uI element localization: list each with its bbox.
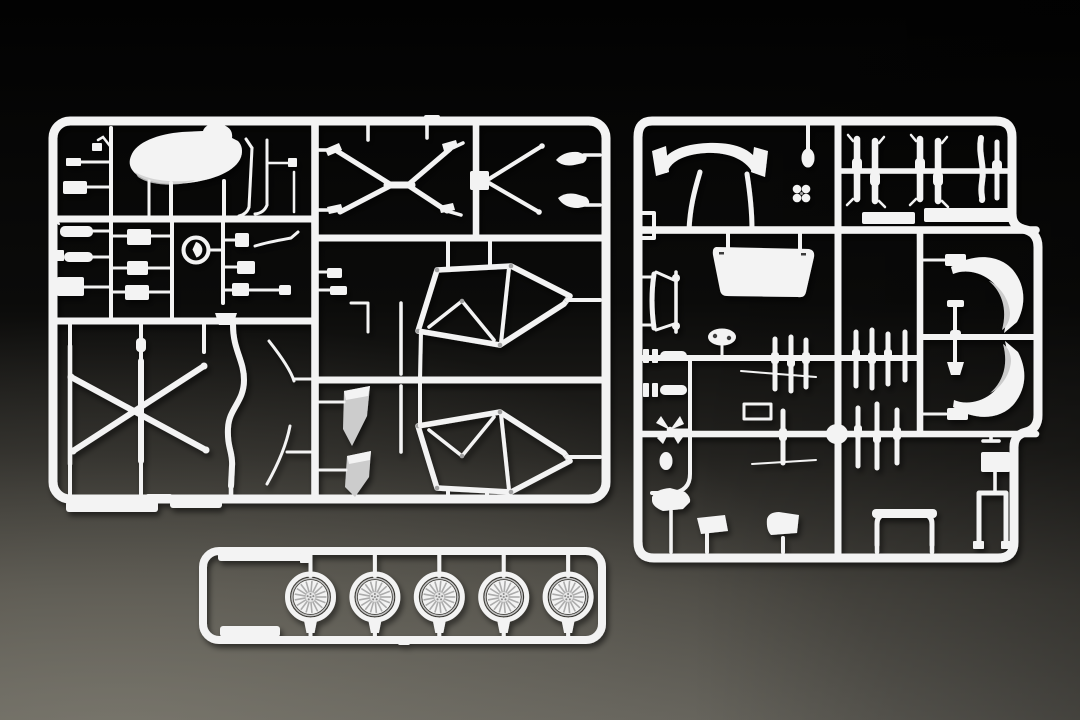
model-kit-sprues-photo <box>0 0 1080 720</box>
sill-strip-part <box>218 548 308 561</box>
sill-strip-part <box>220 626 280 637</box>
photo-canvas <box>0 0 1080 720</box>
hub-boss-part <box>826 424 848 444</box>
